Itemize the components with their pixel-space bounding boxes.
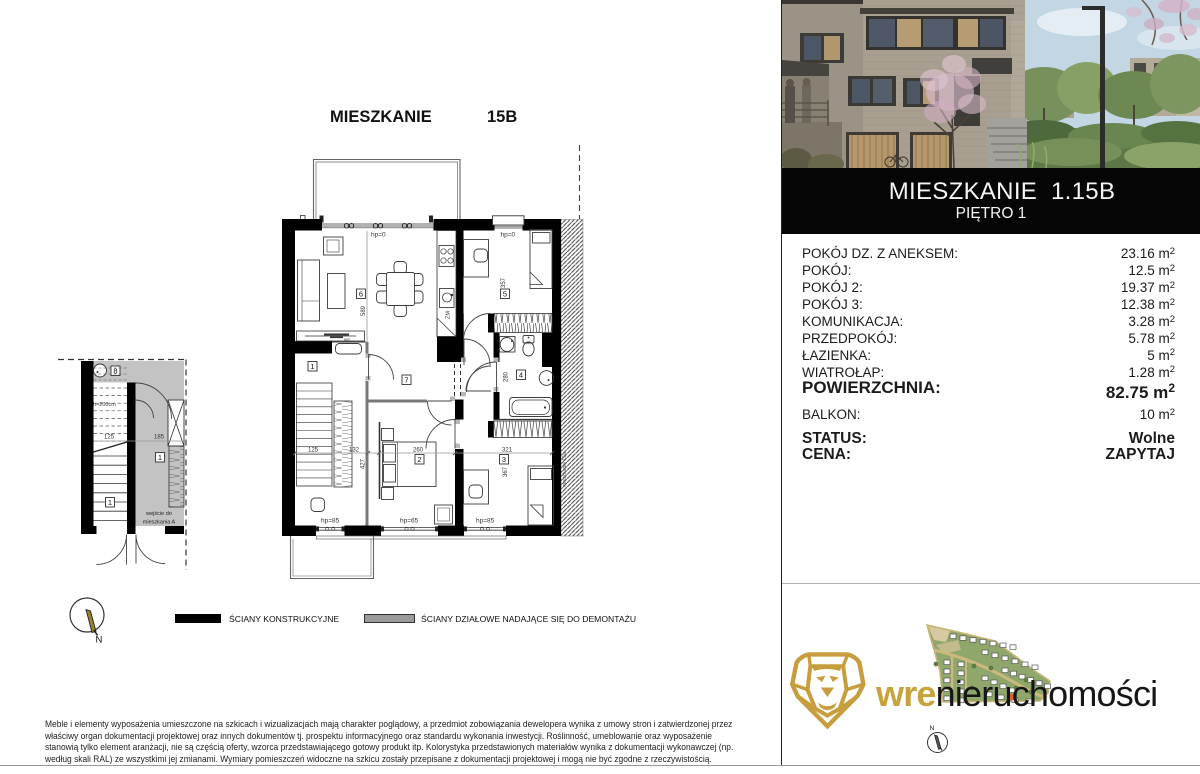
svg-text:N: N: [96, 635, 103, 646]
svg-text:132: 132: [349, 448, 360, 454]
svg-text:125: 125: [308, 448, 319, 454]
svg-text:hp=0: hp=0: [501, 232, 516, 239]
svg-text:2: 2: [417, 455, 421, 464]
svg-text:357: 357: [501, 277, 507, 288]
svg-text:ZM: ZM: [446, 311, 452, 319]
svg-text:mieszkanie 15a: mieszkanie 15a: [562, 452, 568, 487]
svg-text:1: 1: [108, 498, 112, 507]
svg-text:hp=85: hp=85: [476, 518, 495, 525]
svg-text:427: 427: [361, 458, 367, 469]
svg-text:321: 321: [502, 448, 513, 454]
svg-text:hp=0: hp=0: [371, 232, 386, 239]
svg-text:3: 3: [502, 455, 506, 464]
svg-text:1: 1: [158, 453, 162, 462]
svg-text:185: 185: [154, 435, 165, 441]
svg-text:6: 6: [359, 290, 363, 299]
svg-text:589: 589: [361, 305, 367, 316]
svg-text:280: 280: [504, 371, 510, 382]
svg-text:4: 4: [519, 371, 523, 380]
svg-text:260: 260: [413, 448, 424, 454]
svg-text:h=200cm: h=200cm: [93, 402, 116, 408]
svg-text:hp=65: hp=65: [400, 518, 419, 525]
svg-text:mieszkania A: mieszkania A: [143, 520, 176, 526]
svg-text:5: 5: [503, 290, 507, 299]
svg-text:hp=85: hp=85: [321, 518, 340, 525]
svg-text:7: 7: [404, 376, 408, 385]
svg-text:wejście do: wejście do: [145, 511, 172, 517]
svg-text:367: 367: [503, 466, 509, 477]
svg-text:1: 1: [310, 362, 314, 371]
svg-text:N: N: [930, 725, 935, 732]
svg-text:125: 125: [104, 435, 115, 441]
svg-text:WT: WT: [344, 337, 351, 342]
